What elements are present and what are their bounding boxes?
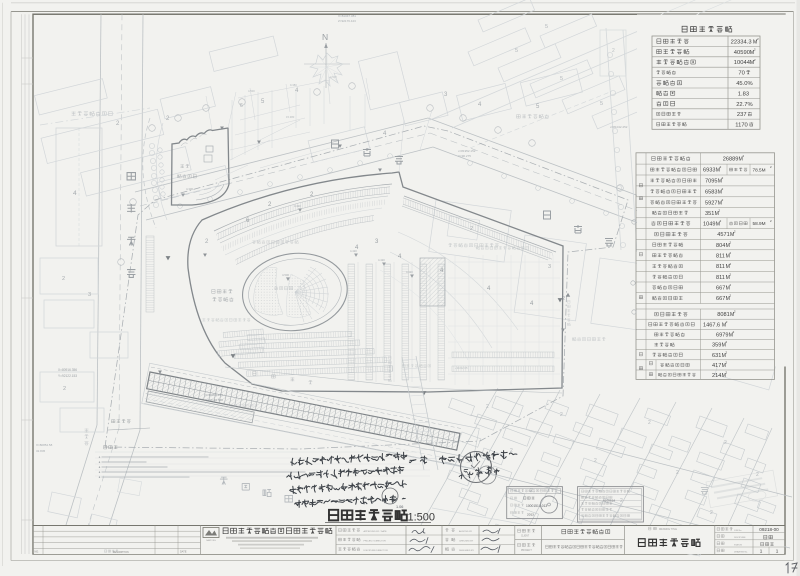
svg-text:X=81047.381: X=81047.381 (338, 14, 356, 18)
svg-text:N: N (322, 32, 328, 42)
svg-text:Y=92122.153: Y=92122.153 (58, 374, 77, 378)
svg-text:214: 214 (712, 373, 721, 379)
svg-text:CLIENT: CLIENT (521, 536, 530, 538)
svg-text:1170: 1170 (735, 122, 747, 128)
svg-text:2: 2 (710, 510, 713, 516)
svg-text:x=81042.452: x=81042.452 (610, 125, 628, 129)
svg-text:4.420: 4.420 (378, 258, 385, 262)
svg-text:X=80854.58: X=80854.58 (36, 443, 53, 447)
svg-text:70: 70 (738, 71, 744, 77)
svg-text:40590: 40590 (734, 50, 750, 56)
svg-text:1: 1 (760, 549, 763, 554)
svg-text:811: 811 (716, 264, 725, 270)
svg-text:5: 5 (560, 76, 563, 82)
svg-text:7095: 7095 (705, 179, 717, 185)
svg-text:2: 2 (724, 440, 727, 446)
svg-text:359: 359 (712, 343, 721, 349)
svg-text:2: 2 (676, 470, 679, 476)
svg-text:NANTONG: NANTONG (206, 539, 216, 542)
svg-text:2: 2 (530, 488, 533, 494)
svg-text:1467.6: 1467.6 (703, 322, 720, 328)
svg-text:DESIGNED BY: DESIGNED BY (459, 550, 474, 552)
svg-text:2: 2 (612, 48, 615, 54)
svg-text:X=80804.107: X=80804.107 (205, 393, 223, 397)
svg-text:2: 2 (560, 412, 563, 418)
svg-text:417: 417 (712, 363, 721, 369)
svg-text:22334.3: 22334.3 (731, 39, 752, 45)
svg-text:8081: 8081 (717, 312, 729, 318)
svg-text:3: 3 (548, 264, 551, 270)
svg-text:4.500: 4.500 (248, 89, 255, 93)
svg-text:6: 6 (240, 103, 243, 109)
svg-text:5: 5 (600, 101, 603, 107)
svg-text:32.845: 32.845 (36, 449, 46, 453)
svg-text:2: 2 (620, 498, 623, 504)
svg-text:2: 2 (63, 386, 66, 392)
svg-text:10001510-013: 10001510-013 (526, 504, 547, 508)
svg-text:58.9M: 58.9M (753, 221, 766, 226)
svg-text:78.5M: 78.5M (753, 168, 766, 173)
svg-text:4.420: 4.420 (350, 249, 357, 253)
svg-text:NO.: NO. (35, 551, 40, 554)
svg-text:1:500: 1:500 (408, 512, 436, 524)
svg-text:+9/29/.05: +9/29/.05 (455, 366, 468, 370)
svg-text:6933: 6933 (703, 168, 715, 174)
svg-text:667: 667 (716, 296, 725, 302)
svg-text:2: 2 (486, 404, 489, 410)
svg-text:351: 351 (705, 211, 714, 217)
svg-text:4.420: 4.420 (294, 204, 301, 208)
svg-text:631: 631 (712, 353, 721, 359)
svg-text:PROJECT DIRECTOR: PROJECT DIRECTOR (364, 541, 387, 543)
svg-text:4100534: 4100534 (603, 499, 615, 503)
svg-text:JOB No.: JOB No. (734, 530, 742, 532)
svg-text:667: 667 (716, 285, 725, 291)
svg-text:6583: 6583 (705, 190, 717, 196)
svg-text:4.420: 4.420 (406, 270, 413, 274)
svg-text:811: 811 (716, 275, 725, 281)
svg-text:1.06: 1.06 (396, 505, 403, 509)
svg-text:10044: 10044 (734, 60, 751, 66)
svg-text:APPROVED BY / DATE: APPROVED BY / DATE (364, 530, 388, 533)
svg-text:DRAWING No.: DRAWING No. (734, 551, 748, 554)
svg-text:4.300: 4.300 (186, 187, 193, 191)
svg-text:4571: 4571 (717, 232, 729, 238)
svg-text:STATUS: STATUS (734, 543, 743, 546)
svg-text:2: 2 (594, 458, 597, 464)
svg-text:5927: 5927 (705, 200, 717, 206)
svg-text:237: 237 (737, 112, 747, 118)
svg-text:X=80916.356: X=80916.356 (58, 368, 77, 372)
svg-text:1049: 1049 (703, 221, 715, 227)
svg-text:2013: 2013 (527, 513, 534, 517)
svg-text:9.380: 9.380 (290, 83, 297, 87)
svg-text:804: 804 (716, 243, 725, 249)
svg-text:x=81952.152: x=81952.152 (458, 149, 476, 153)
svg-text:DESCRIPTION: DESCRIPTION (113, 552, 129, 554)
svg-text:CHECKED BY: CHECKED BY (459, 541, 474, 543)
svg-text:22.7%: 22.7% (736, 102, 752, 108)
svg-text:3: 3 (88, 292, 91, 298)
svg-text:26889: 26889 (723, 157, 739, 163)
svg-text:5: 5 (515, 48, 518, 54)
svg-text:DATE: DATE (180, 551, 187, 554)
svg-text:DISCIPLINE DIRECTOR: DISCIPLINE DIRECTOR (364, 550, 389, 552)
svg-text:AUDITED BY: AUDITED BY (459, 530, 473, 533)
svg-text:5: 5 (545, 24, 548, 30)
svg-text:45.0%: 45.0% (736, 81, 752, 87)
svg-text:2: 2 (62, 276, 65, 282)
svg-text:2: 2 (648, 420, 651, 426)
svg-text:6979: 6979 (716, 333, 728, 339)
svg-text:1: 1 (776, 549, 779, 554)
svg-text:811: 811 (716, 253, 725, 259)
svg-text:Y=92133.565: Y=92133.565 (205, 398, 223, 402)
svg-text:Z=92176.443: Z=92176.443 (338, 19, 356, 23)
svg-text:4: 4 (73, 190, 77, 197)
svg-text:PROJECT: PROJECT (521, 550, 532, 552)
svg-text:15.380: 15.380 (286, 115, 295, 119)
svg-text:09218-00: 09218-00 (759, 527, 779, 532)
svg-text:DRAWING TITLE: DRAWING TITLE (659, 528, 677, 531)
svg-text:4.500: 4.500 (282, 273, 289, 277)
svg-text:Y=90.275: Y=90.275 (458, 154, 471, 158)
svg-text:DISCIPLINE: DISCIPLINE (734, 537, 746, 539)
svg-text:1.83: 1.83 (738, 91, 749, 97)
